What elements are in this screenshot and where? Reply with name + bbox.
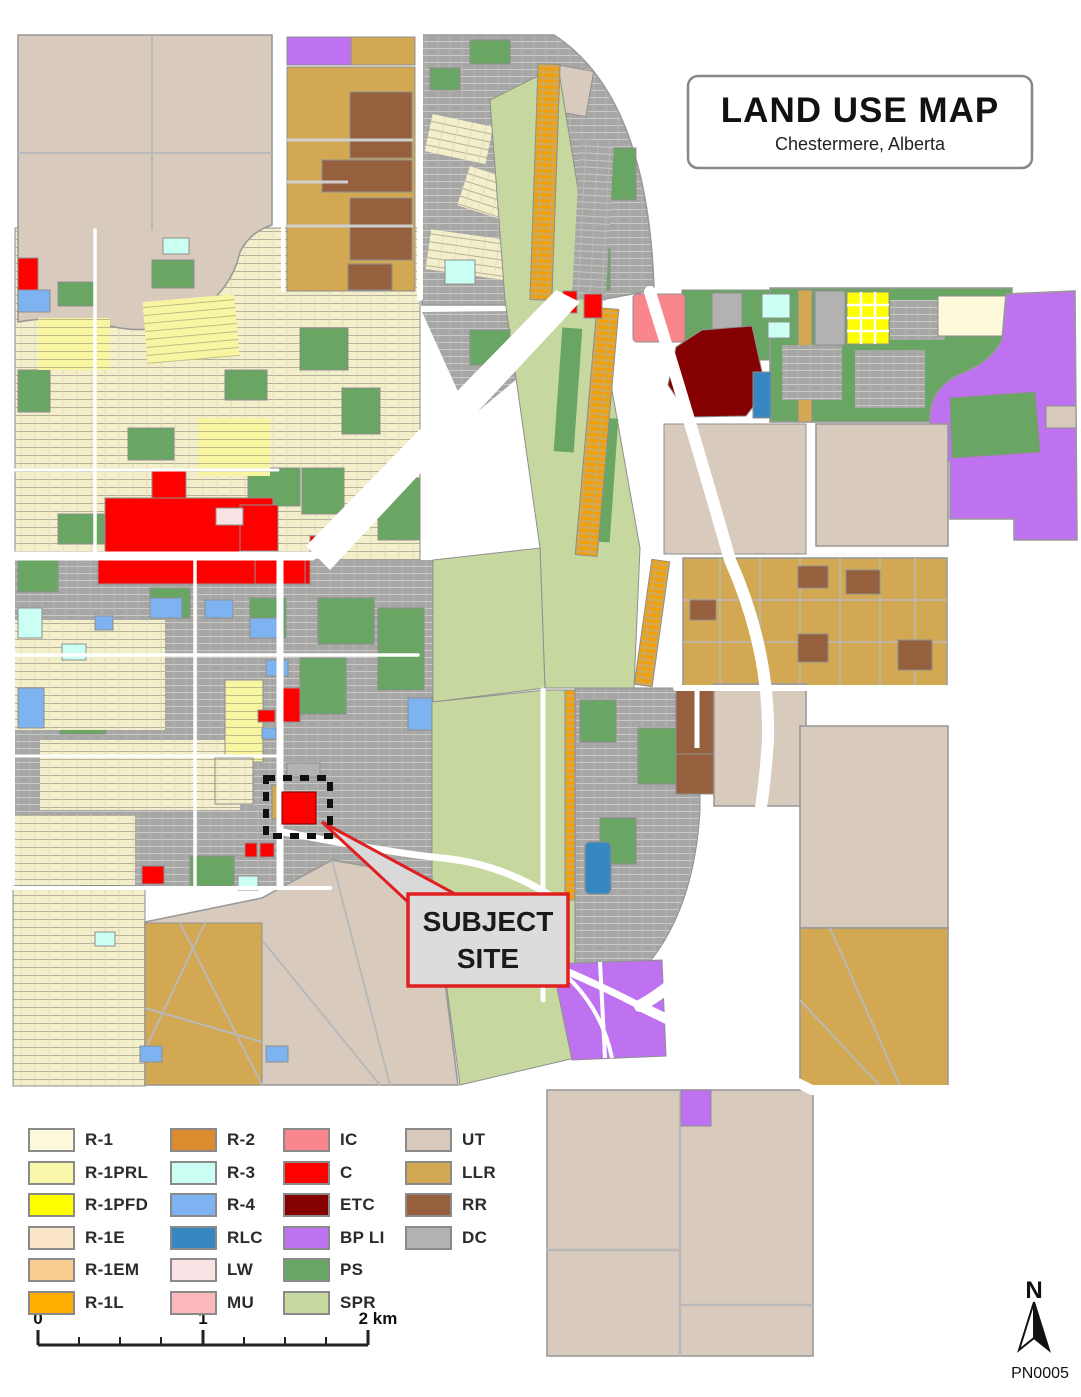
legend-item-r-1prl: R-1PRL xyxy=(28,1157,170,1190)
map-shape xyxy=(585,842,611,894)
legend-label: IC xyxy=(340,1130,358,1150)
legend-swatch xyxy=(28,1128,75,1152)
legend-swatch xyxy=(170,1291,217,1315)
legend-item-r-1pfd: R-1PFD xyxy=(28,1189,170,1222)
map-shape xyxy=(287,763,320,777)
map-subtitle: Chestermere, Alberta xyxy=(775,134,946,154)
map-shape xyxy=(800,928,948,1086)
map-shape xyxy=(150,598,182,618)
legend-swatch xyxy=(28,1258,75,1282)
legend-label: R-1PRL xyxy=(85,1163,148,1183)
map-shape xyxy=(762,294,790,318)
legend-label: R-4 xyxy=(227,1195,255,1215)
map-shape xyxy=(266,1046,288,1062)
map-shape xyxy=(634,559,669,686)
legend-item-rr: RR xyxy=(405,1189,515,1222)
map-shape xyxy=(302,468,344,514)
legend-label: LLR xyxy=(462,1163,496,1183)
map-shape xyxy=(898,640,932,670)
legend-item-bp-li: BP LI xyxy=(283,1222,405,1255)
map-shape xyxy=(128,428,174,460)
callout-line2: SITE xyxy=(457,943,519,974)
map-shape xyxy=(798,566,828,588)
map-shape xyxy=(145,923,262,1085)
legend-swatch xyxy=(405,1128,452,1152)
map-shape xyxy=(580,700,616,742)
map-shape xyxy=(245,843,257,857)
legend-label: R-1PFD xyxy=(85,1195,148,1215)
map-shape xyxy=(95,616,113,630)
legend-item-r-1e: R-1E xyxy=(28,1222,170,1255)
map-shape xyxy=(890,300,945,340)
map-shape xyxy=(262,728,276,739)
map-shape xyxy=(348,264,392,290)
legend-swatch xyxy=(170,1226,217,1250)
legend-label: SPR xyxy=(340,1293,376,1313)
map-shape xyxy=(950,392,1040,458)
map-shape xyxy=(283,688,300,722)
legend-item-r-1l: R-1L xyxy=(28,1287,170,1320)
legend-item-r-1: R-1 xyxy=(28,1124,170,1157)
legend-column-4: UTLLRRRDC xyxy=(405,1124,515,1319)
map-shape xyxy=(1046,406,1076,428)
plan-number: PN0005 xyxy=(1011,1365,1069,1382)
map-shape xyxy=(300,658,346,714)
map-shape xyxy=(18,290,50,312)
map-shape xyxy=(140,1046,162,1062)
map-shape xyxy=(300,328,348,370)
legend-column-1: R-1R-1PRLR-1PFDR-1ER-1EMR-1L xyxy=(28,1124,170,1319)
map-shape xyxy=(250,618,280,638)
legend-label: C xyxy=(340,1163,353,1183)
legend-label: BP LI xyxy=(340,1228,385,1248)
subject-site-parcel xyxy=(282,792,316,824)
legend-item-rlc: RLC xyxy=(170,1222,283,1255)
legend-item-lw: LW xyxy=(170,1254,283,1287)
map-shape xyxy=(62,644,86,660)
map-shape xyxy=(58,514,104,544)
map-shape xyxy=(753,372,771,418)
legend-item-mu: MU xyxy=(170,1287,283,1320)
legend-swatch xyxy=(170,1258,217,1282)
map-shape xyxy=(205,600,233,618)
map-shape xyxy=(40,740,240,810)
map-shape xyxy=(782,345,842,400)
map-shape xyxy=(855,350,925,408)
map-shape xyxy=(342,388,380,434)
legend-item-ut: UT xyxy=(405,1124,515,1157)
map-shape xyxy=(433,548,545,702)
legend-swatch xyxy=(28,1193,75,1217)
legend-label: DC xyxy=(462,1228,487,1248)
legend-item-spr: SPR xyxy=(283,1287,405,1320)
legend-label: UT xyxy=(462,1130,485,1150)
map-title: LAND USE MAP xyxy=(721,91,999,130)
legend-label: R-3 xyxy=(227,1163,255,1183)
north-arrow: N PN0005 xyxy=(1011,1277,1069,1382)
map-shape xyxy=(800,726,948,928)
legend-column-3: ICCETCBP LIPSSPR xyxy=(283,1124,405,1319)
legend-item-r-2: R-2 xyxy=(170,1124,283,1157)
legend-label: ETC xyxy=(340,1195,375,1215)
legend-swatch xyxy=(170,1128,217,1152)
legend-label: R-1L xyxy=(85,1293,124,1313)
legend-swatch xyxy=(283,1193,330,1217)
map-shape xyxy=(142,866,164,884)
map-shape xyxy=(240,505,278,551)
map-shape xyxy=(18,688,44,728)
map-shape xyxy=(378,608,424,690)
map-shape xyxy=(198,418,270,476)
map-shape xyxy=(287,37,351,65)
legend-swatch xyxy=(405,1226,452,1250)
map-shape xyxy=(432,690,575,1085)
legend-swatch xyxy=(283,1291,330,1315)
map-shape xyxy=(18,608,42,638)
map-shape xyxy=(350,92,412,158)
legend-swatch xyxy=(170,1161,217,1185)
map-shape xyxy=(18,558,58,592)
subject-site-callout: SUBJECT SITE xyxy=(408,894,568,986)
map-shape xyxy=(18,370,50,412)
legend-item-dc: DC xyxy=(405,1222,515,1255)
legend-item-ic: IC xyxy=(283,1124,405,1157)
map-shape xyxy=(142,294,239,364)
legend-label: RR xyxy=(462,1195,487,1215)
map-shape xyxy=(260,843,274,857)
map-shape xyxy=(445,260,475,284)
map-shape xyxy=(38,318,110,370)
legend-item-r-4: R-4 xyxy=(170,1189,283,1222)
map-shape xyxy=(584,294,602,318)
legend-item-r-1em: R-1EM xyxy=(28,1254,170,1287)
legend-label: MU xyxy=(227,1293,254,1313)
map-shape xyxy=(152,260,194,288)
map-shape xyxy=(95,932,115,946)
legend-swatch xyxy=(28,1291,75,1315)
map-shape xyxy=(430,68,460,90)
map-shape xyxy=(58,282,94,306)
legend-swatch xyxy=(405,1193,452,1217)
map-shape xyxy=(18,258,38,290)
legend-swatch xyxy=(283,1258,330,1282)
legend-label: RLC xyxy=(227,1228,263,1248)
north-arrow-right-icon xyxy=(1034,1302,1049,1350)
legend-label: PS xyxy=(340,1260,363,1280)
legend-item-llr: LLR xyxy=(405,1157,515,1190)
legend-item-r-3: R-3 xyxy=(170,1157,283,1190)
map-shape xyxy=(13,886,145,1086)
legend-swatch xyxy=(283,1161,330,1185)
map-shape xyxy=(15,815,135,885)
legend-label: R-1 xyxy=(85,1130,113,1150)
legend-item-ps: PS xyxy=(283,1254,405,1287)
title-box: LAND USE MAP Chestermere, Alberta xyxy=(688,76,1032,168)
map-shape xyxy=(846,570,880,594)
legend-column-2: R-2R-3R-4RLCLWMU xyxy=(170,1124,283,1319)
legend-label: R-2 xyxy=(227,1130,255,1150)
map-shape xyxy=(815,291,845,345)
map-shape xyxy=(798,634,828,662)
land-use-map-page: SUBJECT SITE LAND USE MAP Chestermere, A… xyxy=(0,0,1081,1397)
legend-swatch xyxy=(28,1161,75,1185)
map-shape xyxy=(225,370,267,400)
callout-line1: SUBJECT xyxy=(423,906,554,937)
map-shape xyxy=(163,238,189,254)
map-shape xyxy=(681,1090,711,1126)
legend-label: LW xyxy=(227,1260,253,1280)
legend-swatch xyxy=(405,1161,452,1185)
legend-swatch xyxy=(28,1226,75,1250)
map-shape xyxy=(215,758,253,804)
legend: R-1R-1PRLR-1PFDR-1ER-1EMR-1LR-2R-3R-4RLC… xyxy=(28,1124,528,1319)
map-shape xyxy=(258,710,275,722)
north-arrow-left-icon xyxy=(1019,1302,1034,1350)
legend-swatch xyxy=(283,1128,330,1152)
north-label: N xyxy=(1025,1277,1042,1304)
legend-label: R-1EM xyxy=(85,1260,139,1280)
map-shape xyxy=(664,424,806,554)
legend-swatch xyxy=(170,1193,217,1217)
map-shape xyxy=(690,600,716,620)
map-shape xyxy=(38,1330,368,1345)
map-shape xyxy=(408,698,432,730)
map-shape xyxy=(318,598,374,644)
map-shape xyxy=(225,680,263,762)
map-shape xyxy=(768,322,790,338)
map-shape xyxy=(216,508,243,525)
map-shape xyxy=(350,198,412,260)
map-shape xyxy=(351,37,415,65)
map-shape xyxy=(322,160,412,192)
legend-swatch xyxy=(283,1226,330,1250)
legend-label: R-1E xyxy=(85,1228,125,1248)
map-shape xyxy=(938,296,1012,336)
map-shape xyxy=(816,424,948,546)
map-shape xyxy=(470,40,510,64)
legend-item-c: C xyxy=(283,1157,405,1190)
legend-item-etc: ETC xyxy=(283,1189,405,1222)
